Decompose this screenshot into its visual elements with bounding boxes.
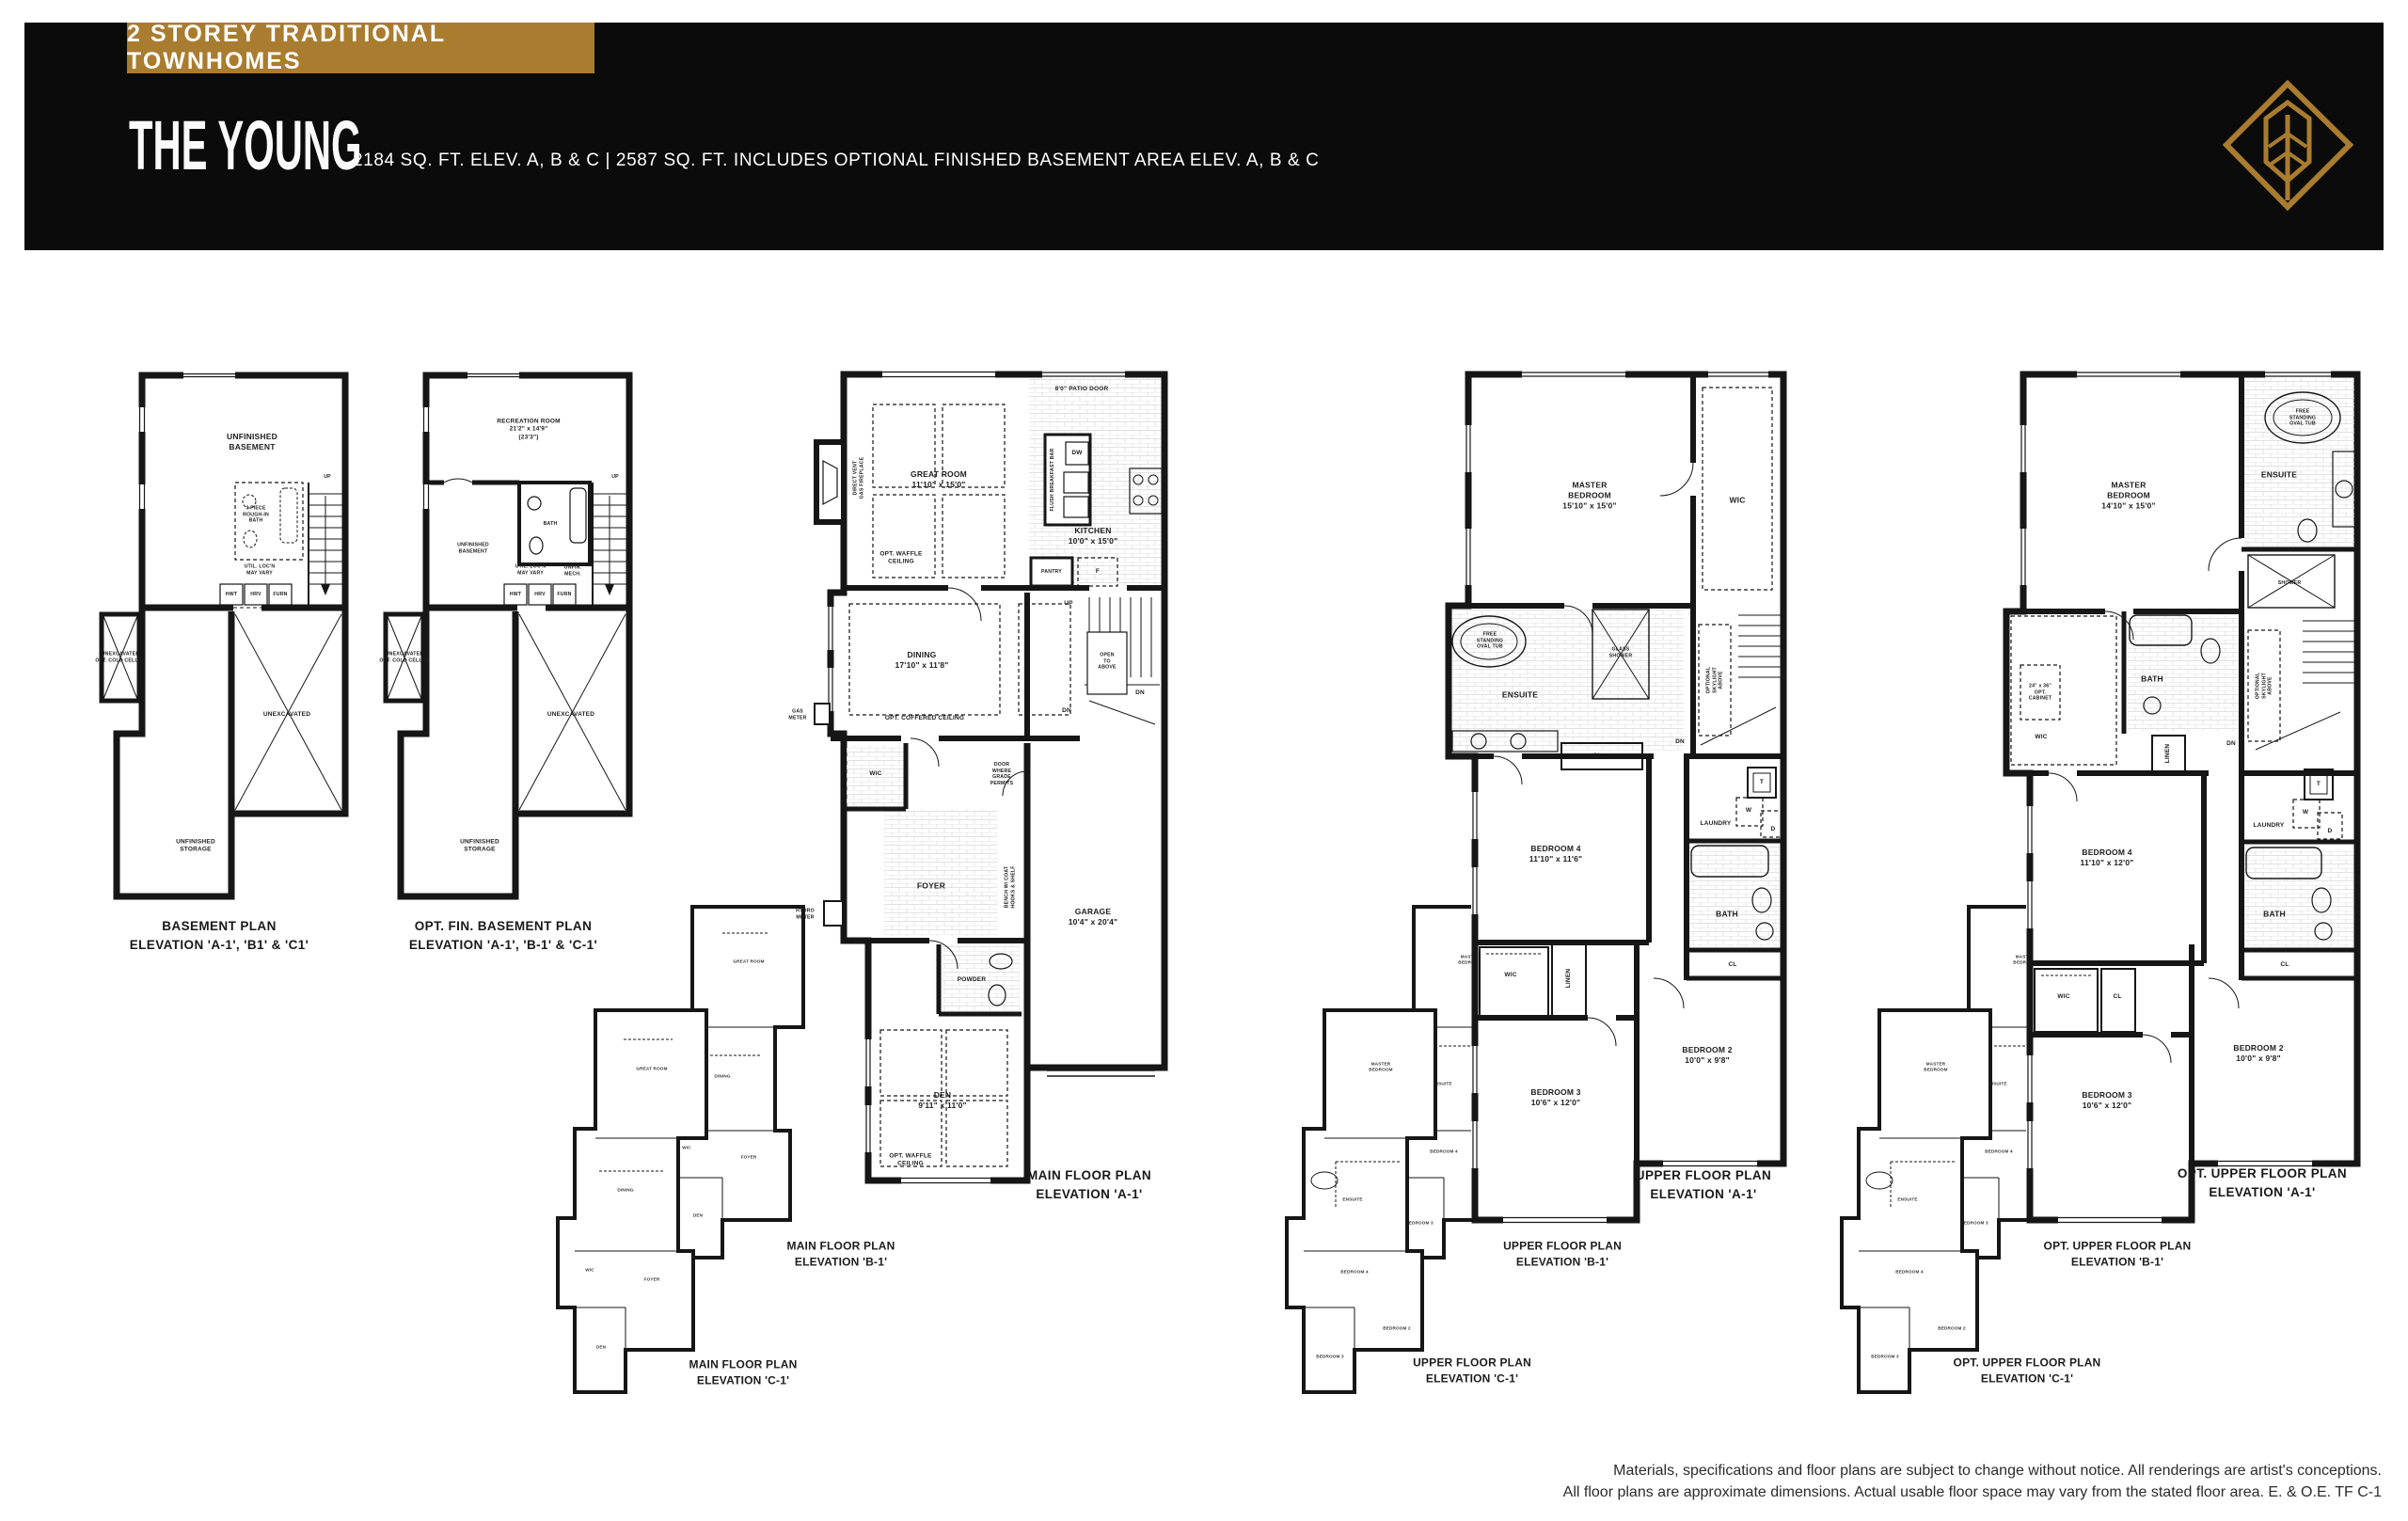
mini-room-label: DINING — [617, 1187, 633, 1193]
room-label-garage: GARAGE 10'4" x 20'4" — [1069, 907, 1118, 927]
stairs-dn-label: DN — [2226, 740, 2236, 748]
washer-t-label: T — [1760, 779, 1764, 786]
main-floor-plan-drawing — [779, 367, 1174, 1223]
basement-plan-drawing — [94, 372, 376, 974]
plan-title-opt-upper-c1: OPT. UPPER FLOOR PLAN ELEVATION 'C-1' — [1938, 1355, 2116, 1388]
room-label-powder: POWDER — [958, 976, 986, 984]
hwt-label: HWT — [510, 592, 521, 598]
washer-w-label: W — [2303, 809, 2308, 816]
upper-floor-plan-drawing — [1437, 369, 1814, 1229]
room-label-wic: WIC — [869, 770, 881, 778]
disclaimer: Materials, specifications and floor plan… — [877, 1460, 2382, 1503]
room-label-great-room: GREAT ROOM 11'10" x 15'0" — [911, 469, 967, 490]
oval-tub-label: FREE STANDING OVAL TUB — [1477, 631, 1503, 650]
page-subtitle: 2184 SQ. FT. ELEV. A, B & C | 2587 SQ. F… — [353, 151, 1319, 171]
main-floor-plan-a1: 8'0" PATIO DOOR GREAT ROOM 11'10" x 15'0… — [779, 367, 1174, 1223]
room-label-rough-in-bath: 3 PIECE ROUGH-IN BATH — [243, 505, 269, 524]
patio-door-label: 8'0" PATIO DOOR — [1055, 386, 1109, 393]
page-title: THE YOUNG — [129, 105, 362, 186]
oval-tub-label: FREE STANDING OVAL TUB — [2289, 408, 2316, 427]
room-label-wic: WIC — [2035, 734, 2047, 741]
mini-room-label: FOYER — [644, 1276, 660, 1282]
room-label-wic: WIC — [1729, 495, 1745, 505]
mini-room-label: BEDROOM 3 — [1316, 1354, 1344, 1359]
category-badge: 2 STOREY TRADITIONAL TOWNHOMES — [127, 23, 594, 73]
stairs-dn-label: DN — [1135, 689, 1145, 697]
bench-label: BENCH W/ COAT HOOKS & SHELF — [1005, 865, 1017, 908]
furn-label: FURN — [273, 592, 287, 598]
room-label-kitchen: KITCHEN 10'0" x 15'0" — [1069, 526, 1118, 547]
breakfast-bar-label: FLUSH BREAKFAST BAR — [1050, 449, 1056, 512]
washer-w-label: W — [1746, 807, 1751, 815]
hwt-label: HWT — [226, 592, 237, 598]
opt-basement-plan: RECREATION ROOM 21'2" x 14'9" (23'3") BA… — [378, 372, 660, 974]
room-label-wic2: WIC — [2057, 993, 2069, 1001]
fireplace-label: DIRECT VENT GAS FIREPLACE — [853, 457, 865, 499]
room-label-bedroom2: BEDROOM 2 10'0" x 9'8" — [2233, 1043, 2283, 1064]
open-to-above-label: OPEN TO ABOVE — [1098, 652, 1116, 671]
closet-hall-label: CL — [2280, 961, 2289, 969]
builder-logo — [2220, 77, 2356, 214]
plan-title-upper-c1: UPPER FLOOR PLAN ELEVATION 'C-1' — [1392, 1355, 1552, 1388]
plan-title-basement: BASEMENT PLAN ELEVATION 'A-1', 'B1' & 'C… — [87, 917, 351, 956]
room-label-foyer: FOYER — [917, 880, 945, 891]
room-label-bedroom4: BEDROOM 4 11'10" x 11'6" — [1529, 844, 1583, 864]
dw-label: DW — [1071, 450, 1082, 457]
stairs-dn-label: DN — [1675, 738, 1685, 746]
hrv-label: HRV — [534, 592, 545, 598]
mini-room-label: MASTER BEDROOM — [1924, 1062, 1947, 1072]
opt-upper-floor-plan-a1: MASTER BEDROOM 14'10" x 15'0" FREE STAND… — [1992, 369, 2368, 1229]
room-label-den: DEN 9'11" x 11'0" — [918, 1090, 967, 1111]
linen-label: LINEN — [1565, 969, 1573, 989]
linen-label: LINEN — [2164, 744, 2172, 764]
plan-title-upper-a1: UPPER FLOOR PLAN ELEVATION 'A-1' — [1605, 1166, 1802, 1205]
room-label-wic2: WIC — [1504, 972, 1516, 979]
stairs-up-label: UP — [1064, 600, 1072, 608]
mini-room-label: GREAT ROOM — [636, 1066, 667, 1071]
diamond-leaf-logo-icon — [2220, 77, 2356, 214]
closet2-label: CL — [1728, 961, 1736, 969]
dryer-d-label: D — [2328, 828, 2333, 835]
mini-room-label: ENSUITE — [1897, 1196, 1917, 1202]
room-label-bedroom2: BEDROOM 2 10'0" x 9'8" — [1682, 1045, 1732, 1066]
door-grade-label: DOOR WHERE GRADE PERMITS — [990, 762, 1013, 786]
util-note-label: UTIL. LOC'N MAY VARY — [515, 564, 547, 577]
room-label-ensuite: ENSUITE — [2261, 469, 2297, 480]
room-label-unfinished-storage: UNFINISHED STORAGE — [176, 839, 215, 855]
mini-room-label: BEDROOM 4 — [1340, 1269, 1369, 1275]
plan-title-main-c1: MAIN FLOOR PLAN ELEVATION 'C-1' — [663, 1357, 823, 1390]
stairs-dn-label: DN — [1062, 707, 1071, 715]
room-label-unfinished-basement: UNFINISHED BASEMENT — [457, 543, 489, 555]
room-label-bath: BATH — [1716, 909, 1738, 919]
mini-room-label: BEDROOM 2 — [1383, 1325, 1411, 1331]
room-label-cold-cellar: UNEXCAVATED OPT. COLD CELLAR — [95, 652, 145, 664]
room-label-master: MASTER BEDROOM 14'10" x 15'0" — [2101, 480, 2155, 511]
room-label-unexcavated: UNEXCAVATED — [547, 711, 594, 719]
pantry-label: PANTRY — [1041, 569, 1062, 576]
glass-shower-label: GLASS SHOWER — [1609, 647, 1633, 659]
opt-waffle2-label: OPT. WAFFLE CEILING — [889, 1153, 931, 1169]
room-label-dining: DINING 17'10" x 11'8" — [895, 650, 949, 671]
closet-label: CL — [1592, 753, 1601, 760]
shower-label: SHOWER — [2278, 580, 2302, 587]
hydro-meter-label: HYDRO METER — [796, 909, 815, 921]
fridge-label: F — [1096, 568, 1100, 576]
room-label-bath: BATH — [544, 521, 558, 528]
room-label-unexcavated: UNEXCAVATED — [263, 711, 310, 719]
room-label-bedroom4: BEDROOM 4 11'10" x 12'0" — [2081, 848, 2134, 868]
room-label-laundry: LAUNDRY — [1701, 820, 1732, 828]
room-label-bath2: BATH — [2263, 909, 2286, 919]
mini-room-label: GREAT ROOM — [733, 959, 764, 964]
closet2-label: CL — [2113, 993, 2121, 1001]
skylight-label: OPTIONAL SKYLIGHT ABOVE — [2255, 673, 2273, 699]
room-label-unfinished-storage: UNFINISHED STORAGE — [460, 839, 499, 855]
room-label-recreation-room: RECREATION ROOM 21'2" x 14'9" (23'3") — [497, 418, 561, 441]
opt-cabinet-label: 24" x 36" OPT. CABINET — [2029, 683, 2052, 702]
skylight-label: OPTIONAL SKYLIGHT ABOVE — [1705, 667, 1724, 693]
stairs-up-label: UP — [611, 474, 619, 481]
category-badge-label: 2 STOREY TRADITIONAL TOWNHOMES — [127, 21, 594, 75]
opt-upper-floor-plan-drawing — [1992, 369, 2368, 1229]
dryer-d-label: D — [1771, 826, 1776, 833]
mini-room-label: BEDROOM 2 — [1938, 1325, 1966, 1331]
upper-floor-plan-a1: MASTER BEDROOM 15'10" x 15'0" WIC FREE S… — [1437, 369, 1814, 1229]
floorplan-brochure-page: { "header": { "badge": "2 STOREY TRADITI… — [0, 0, 2408, 1521]
room-label-ensuite: ENSUITE — [1502, 689, 1538, 700]
gas-meter-label: GAS METER — [788, 709, 806, 721]
opt-coffered-label: OPT. COFFERED CEILING — [885, 715, 964, 722]
opt-basement-plan-drawing — [378, 372, 660, 974]
room-label-unfinished-basement: UNFINISHED BASEMENT — [227, 432, 277, 452]
room-label-bedroom3: BEDROOM 3 10'6" x 12'0" — [1530, 1087, 1580, 1108]
room-label-bath-main: BATH — [2141, 673, 2163, 684]
room-label-cold-cellar: UNEXCAVATED OPT. COLD CELLAR — [379, 652, 429, 664]
mini-room-label: DEN — [596, 1344, 606, 1350]
plan-title-opt-upper-a1: OPT. UPPER FLOOR PLAN ELEVATION 'A-1' — [2154, 1165, 2370, 1203]
main-floor-plan-c1: GREAT ROOM DINING WIC FOYER DEN MAIN FLO… — [522, 997, 804, 1439]
mini-room-label: WIC — [585, 1267, 594, 1273]
disclaimer-line1: Materials, specifications and floor plan… — [877, 1460, 2382, 1481]
room-label-bedroom3: BEDROOM 3 10'6" x 12'0" — [2082, 1090, 2131, 1111]
util-note-label: UTIL. LOC'N MAY VARY — [245, 564, 276, 577]
mini-room-label: BEDROOM 4 — [1895, 1269, 1924, 1275]
mini-room-label: MASTER BEDROOM — [1369, 1062, 1392, 1072]
room-label-unfin-mech: UNFIN. MECH. — [564, 565, 582, 578]
plan-title-main-a1: MAIN FLOOR PLAN ELEVATION 'A-1' — [995, 1166, 1183, 1205]
basement-plan: UNFINISHED BASEMENT 3 PIECE ROUGH-IN BAT… — [94, 372, 376, 974]
room-label-master: MASTER BEDROOM 15'10" x 15'0" — [1562, 480, 1616, 511]
mini-room-label: BEDROOM 3 — [1871, 1354, 1899, 1359]
furn-label: FURN — [557, 592, 571, 598]
mini-room-label: ENSUITE — [1342, 1196, 1362, 1202]
disclaimer-line2: All floor plans are approximate dimensio… — [877, 1481, 2382, 1503]
opt-waffle-label: OPT. WAFFLE CEILING — [879, 551, 922, 567]
hrv-label: HRV — [250, 592, 261, 598]
room-label-laundry: LAUNDRY — [2254, 822, 2285, 830]
washer-t-label: T — [2317, 781, 2321, 788]
stairs-up-label: UP — [324, 474, 331, 481]
